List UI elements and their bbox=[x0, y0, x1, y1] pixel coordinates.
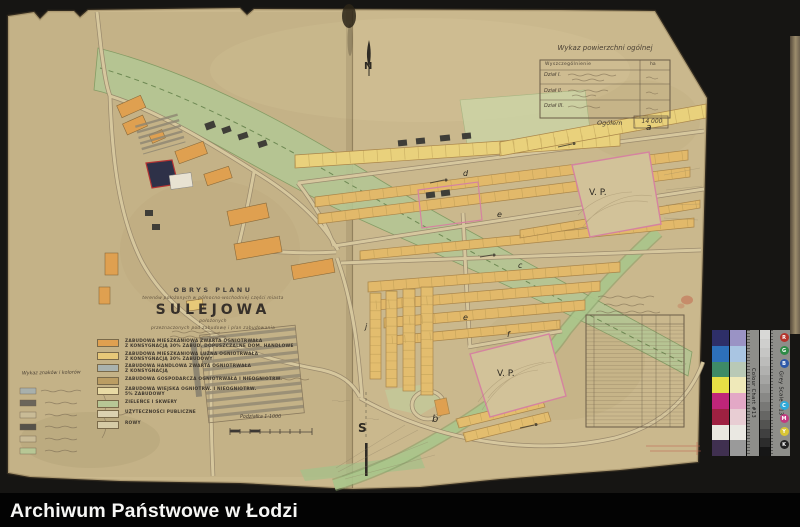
map-label-j: j bbox=[365, 322, 367, 331]
legend-label-line: 5% ZABUDOWY bbox=[125, 392, 256, 397]
grey-step bbox=[760, 429, 770, 438]
grey-step bbox=[760, 357, 770, 366]
legend-swatch bbox=[97, 377, 119, 385]
colour-chart-ruler: Colour Chart #13 bbox=[747, 330, 759, 456]
calibration-patch bbox=[730, 425, 747, 441]
legend-item: ZABUDOWA MIESZKANIOWA ZWARTA OGNIOTRWAŁA… bbox=[97, 339, 327, 349]
area-table-row: Dział III. bbox=[544, 103, 564, 109]
calibration-patch bbox=[712, 409, 729, 425]
calibration-dot-B: B bbox=[780, 359, 789, 368]
legend-label-line: ZABUDOWA MIESZKANIOWA LUŹNA OGNIOTRWAŁA bbox=[125, 352, 258, 357]
legend-label-line: UŻYTECZNOŚCI PUBLICZNE bbox=[125, 410, 196, 415]
legend-label: ZABUDOWA GOSPODARCZA OGNIOTRWAŁA I NIEOG… bbox=[125, 377, 282, 382]
legend-swatch bbox=[97, 364, 119, 372]
grey-step bbox=[760, 375, 770, 384]
calibration-dot-M: M bbox=[780, 414, 789, 423]
legend-item: ROWY bbox=[97, 421, 327, 429]
grey-step bbox=[760, 348, 770, 357]
calibration-patch bbox=[730, 440, 747, 456]
map-label-c: c bbox=[518, 261, 522, 270]
calibration-patch bbox=[712, 377, 729, 393]
area-total-label: Ogółem bbox=[597, 119, 622, 127]
rgb-dots: RGB bbox=[780, 333, 790, 372]
legend-swatch bbox=[97, 421, 119, 429]
grey-step bbox=[760, 393, 770, 402]
grey-step bbox=[760, 384, 770, 393]
calibration-patch bbox=[730, 362, 747, 378]
area-total-value: 14 000 bbox=[636, 118, 668, 125]
calibration-patch bbox=[730, 409, 747, 425]
calibration-dot-C: C bbox=[780, 401, 789, 410]
calibration-color-column bbox=[712, 330, 729, 456]
calibration-patch bbox=[712, 346, 729, 362]
calibration-patch bbox=[712, 362, 729, 378]
legend-label: ZABUDOWA MIESZKANIOWA ZWARTA OGNIOTRWAŁA… bbox=[125, 339, 294, 349]
grey-step bbox=[760, 366, 770, 375]
legend-label: ROWY bbox=[125, 421, 141, 426]
book-page-edge bbox=[790, 36, 800, 334]
plan-subtitle-2: położonych bbox=[118, 319, 308, 324]
legend-swatch bbox=[97, 352, 119, 360]
grey-step bbox=[760, 330, 770, 339]
calibration-patch bbox=[712, 330, 729, 346]
legend-swatch bbox=[97, 400, 119, 408]
cmyk-dots: CMYK bbox=[780, 401, 790, 453]
plan-subtitle-3: przeznaczonych pod zabudowę i plan zabud… bbox=[118, 326, 308, 331]
calibration-patch bbox=[712, 393, 729, 409]
map-label-d: d bbox=[463, 169, 468, 178]
legend-item: ZABUDOWA GOSPODARCZA OGNIOTRWAŁA I NIEOG… bbox=[97, 377, 327, 385]
grey-step bbox=[760, 402, 770, 411]
legend-label-line: ZABUDOWA GOSPODARCZA OGNIOTRWAŁA I NIEOG… bbox=[125, 377, 282, 382]
legend-item: ZABUDOWA WIEJSKA OGNIOTRW. I NIEOGNIOTRW… bbox=[97, 387, 327, 397]
grey-step bbox=[760, 438, 770, 447]
grey-step bbox=[760, 420, 770, 429]
red-stamp bbox=[681, 296, 693, 305]
legend-swatch bbox=[97, 410, 119, 418]
calibration-patch bbox=[730, 330, 747, 346]
title-block: OBRYS PLANU terenów położonych w północn… bbox=[118, 286, 308, 331]
legend-label-line: ZIELEŃCE I SKWERY bbox=[125, 400, 177, 405]
map-label-s: S bbox=[358, 421, 367, 435]
legend-label-line: Z KONSYGNACJĄ 30% ZABUDOWY bbox=[125, 357, 258, 362]
grey-step bbox=[760, 339, 770, 348]
legend-item: ZABUDOWA MIESZKANIOWA LUŹNA OGNIOTRWAŁAZ… bbox=[97, 352, 327, 362]
legend-label: UŻYTECZNOŚCI PUBLICZNE bbox=[125, 410, 196, 415]
calibration-patch bbox=[730, 346, 747, 362]
legend-item: ZABUDOWA HANDLOWA ZWARTA OGNIOTRWAŁAZ KO… bbox=[97, 364, 327, 374]
map-label-n: N bbox=[364, 61, 372, 72]
legend-label-line: Z KONSYGNACJĄ bbox=[125, 369, 251, 374]
map-drawing bbox=[0, 0, 800, 527]
legend-label-line: Z KONSYGNACJĄ 30% ZABUD. DOPUSZCZALNE DO… bbox=[125, 344, 294, 349]
archive-name: Archiwum Państwowe w Łodzi bbox=[10, 493, 298, 527]
calibration-dot-G: G bbox=[780, 346, 789, 355]
mini-legend-title: Wykaz znaków i kolorów bbox=[22, 370, 81, 376]
area-table-row: Dział II. bbox=[544, 88, 563, 94]
legend-label: ZABUDOWA MIESZKANIOWA LUŹNA OGNIOTRWAŁAZ… bbox=[125, 352, 258, 362]
calibration-patch bbox=[712, 440, 729, 456]
legend-swatch bbox=[97, 339, 119, 347]
map-label-a: a bbox=[646, 123, 652, 133]
grey-scale-ruler: Grey Scale #13 RGB CMYK bbox=[771, 330, 790, 456]
legend-label: ZIELEŃCE I SKWERY bbox=[125, 400, 177, 405]
grey-step bbox=[760, 447, 770, 456]
map-label-b: b bbox=[432, 414, 438, 425]
calibration-dot-K: K bbox=[780, 440, 789, 449]
map-label-e2: e bbox=[463, 313, 468, 322]
archival-map-photo: OBRYS PLANU terenów położonych w północn… bbox=[0, 0, 800, 527]
map-legend: ZABUDOWA MIESZKANIOWA ZWARTA OGNIOTRWAŁA… bbox=[97, 339, 327, 432]
map-label-vp1: V. P. bbox=[589, 188, 607, 198]
calibration-dot-R: R bbox=[780, 333, 789, 342]
area-table-row: Dział I. bbox=[544, 72, 561, 78]
calibration-pastel-column bbox=[730, 330, 747, 456]
color-calibration-chart: Colour Chart #13 Grey Scale #13 RGB CMYK bbox=[712, 330, 790, 456]
calibration-patch bbox=[712, 425, 729, 441]
legend-item: UŻYTECZNOŚCI PUBLICZNE bbox=[97, 410, 327, 418]
map-label-f: f bbox=[507, 330, 510, 339]
legend-label: ZABUDOWA HANDLOWA ZWARTA OGNIOTRWAŁAZ KO… bbox=[125, 364, 251, 374]
legend-item: ZIELEŃCE I SKWERY bbox=[97, 400, 327, 408]
calibration-patch bbox=[730, 377, 747, 393]
scale-note: Podziałka 1:1000 bbox=[240, 415, 281, 420]
plan-heading: OBRYS PLANU bbox=[118, 286, 308, 294]
map-label-e: e bbox=[497, 210, 502, 219]
plan-subtitle-1: terenów położonych w północno-wschodniej… bbox=[118, 296, 308, 301]
legend-swatch bbox=[97, 387, 119, 395]
legend-label: ZABUDOWA WIEJSKA OGNIOTRW. I NIEOGNIOTRW… bbox=[125, 387, 256, 397]
grey-scale-column bbox=[760, 330, 770, 456]
archive-caption-bar: Archiwum Państwowe w Łodzi bbox=[0, 493, 800, 527]
town-name: SULEJOWA bbox=[118, 302, 308, 318]
colour-chart-label: Colour Chart #13 bbox=[750, 368, 756, 418]
calibration-patch bbox=[730, 393, 747, 409]
grey-step bbox=[760, 411, 770, 420]
area-table-header: Wyszczególnienie bbox=[545, 62, 591, 67]
light-building bbox=[169, 173, 193, 190]
legend-label-line: ROWY bbox=[125, 421, 141, 426]
area-table-unit: ha bbox=[650, 62, 656, 67]
area-table-title: Wykaz powierzchni ogólnej bbox=[540, 44, 670, 52]
map-label-vp2: V. P. bbox=[497, 369, 515, 379]
calibration-dot-Y: Y bbox=[780, 427, 789, 436]
